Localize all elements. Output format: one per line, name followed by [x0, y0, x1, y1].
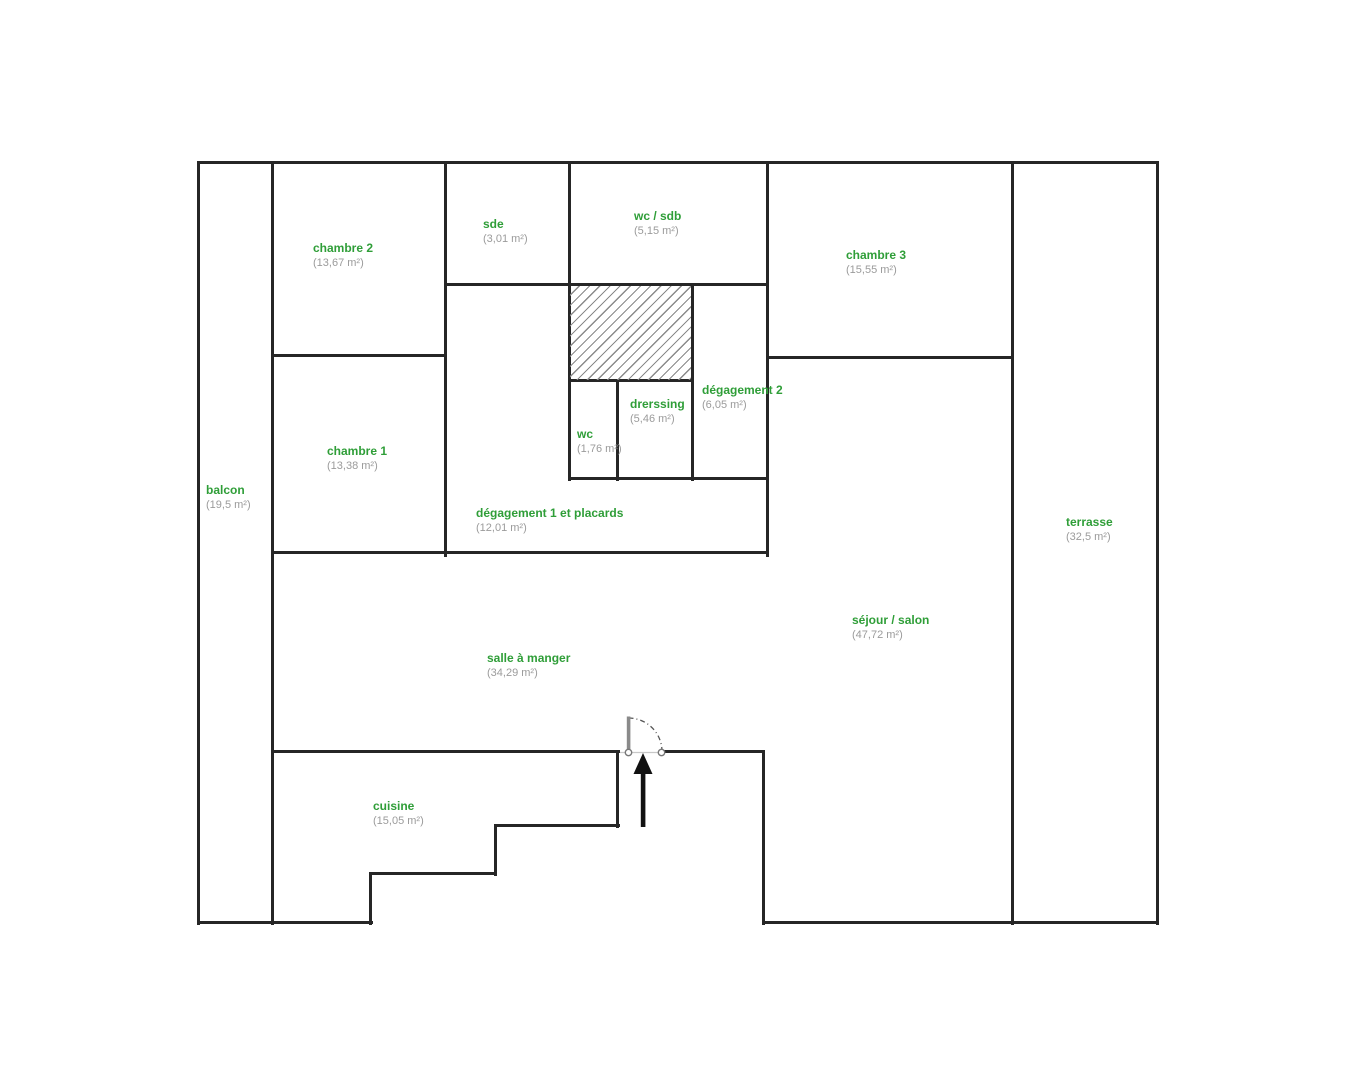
room-label-chambre-3: chambre 3 (15,55 m²) — [846, 247, 906, 278]
room-area: (3,01 m²) — [483, 232, 528, 247]
door-latch-dot — [658, 749, 664, 755]
room-label-balcon: balcon (19,5 m²) — [206, 482, 251, 513]
room-name: dégagement 2 — [702, 382, 783, 398]
room-name: cuisine — [373, 798, 424, 814]
room-label-sde: sde (3,01 m²) — [483, 216, 528, 247]
floor-plan: balcon (19,5 m²) chambre 2 (13,67 m²) sd… — [0, 0, 1369, 1080]
room-area: (1,76 m²) — [577, 442, 622, 457]
room-area: (13,38 m²) — [327, 459, 387, 474]
room-area: (19,5 m²) — [206, 498, 251, 513]
door-hinge-dot — [625, 749, 631, 755]
room-label-sejour-salon: séjour / salon (47,72 m²) — [852, 612, 929, 643]
room-label-degagement-1: dégagement 1 et placards (12,01 m²) — [476, 505, 623, 536]
door-swing-arc-icon — [629, 718, 663, 752]
door-leaf-icon — [627, 717, 631, 753]
entrance-arrow-shaft — [641, 770, 646, 827]
room-area: (47,72 m²) — [852, 628, 929, 643]
room-label-chambre-2: chambre 2 (13,67 m²) — [313, 240, 373, 271]
entrance-arrow-icon — [634, 753, 653, 774]
room-name: wc — [577, 426, 622, 442]
room-label-chambre-1: chambre 1 (13,38 m²) — [327, 443, 387, 474]
room-area: (34,29 m²) — [487, 666, 570, 681]
room-label-cuisine: cuisine (15,05 m²) — [373, 798, 424, 829]
room-name: terrasse — [1066, 514, 1113, 530]
room-label-wc: wc (1,76 m²) — [577, 426, 622, 457]
room-area: (15,55 m²) — [846, 263, 906, 278]
room-area: (12,01 m²) — [476, 521, 623, 536]
room-name: drerssing — [630, 396, 685, 412]
room-name: séjour / salon — [852, 612, 929, 628]
room-name: chambre 1 — [327, 443, 387, 459]
room-name: balcon — [206, 482, 251, 498]
room-name: dégagement 1 et placards — [476, 505, 623, 521]
room-label-salle-a-manger: salle à manger (34,29 m²) — [487, 650, 570, 681]
room-area: (32,5 m²) — [1066, 530, 1113, 545]
entry-door-and-arrow — [0, 0, 1369, 1080]
room-label-degagement-2: dégagement 2 (6,05 m²) — [702, 382, 783, 413]
room-name: sde — [483, 216, 528, 232]
room-area: (13,67 m²) — [313, 256, 373, 271]
room-label-wc-sdb: wc / sdb (5,15 m²) — [634, 208, 681, 239]
room-name: chambre 3 — [846, 247, 906, 263]
room-area: (15,05 m²) — [373, 814, 424, 829]
room-area: (5,15 m²) — [634, 224, 681, 239]
room-label-terrasse: terrasse (32,5 m²) — [1066, 514, 1113, 545]
room-name: wc / sdb — [634, 208, 681, 224]
room-name: chambre 2 — [313, 240, 373, 256]
room-area: (5,46 m²) — [630, 412, 685, 427]
room-area: (6,05 m²) — [702, 398, 783, 413]
room-name: salle à manger — [487, 650, 570, 666]
room-label-dressing: drerssing (5,46 m²) — [630, 396, 685, 427]
